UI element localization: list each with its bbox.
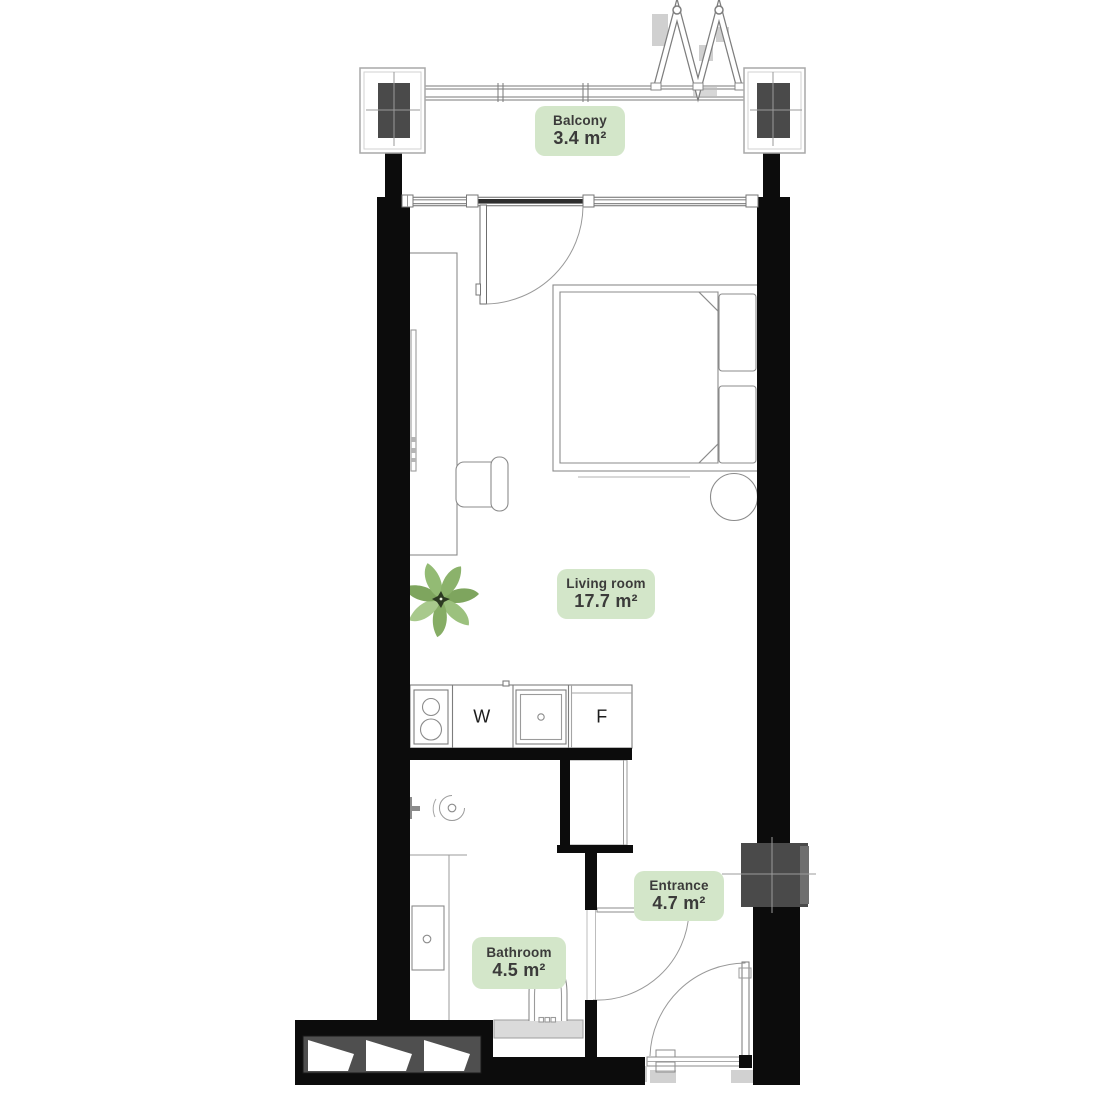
washer-label: W bbox=[473, 707, 491, 728]
room-area: 4.5 m² bbox=[492, 960, 545, 981]
sink bbox=[516, 690, 566, 744]
desk bbox=[409, 253, 457, 555]
bathroom-fixtures bbox=[408, 796, 583, 1039]
balcony-door-panel bbox=[478, 199, 583, 204]
ventilation-shaft bbox=[303, 1036, 481, 1073]
room-name: Balcony bbox=[553, 113, 607, 129]
room-badge-living-room: Living room 17.7 m² bbox=[557, 569, 655, 619]
cooktop bbox=[414, 690, 448, 744]
floor-plan-drawing bbox=[0, 0, 1100, 1100]
room-name: Living room bbox=[566, 576, 645, 592]
entrance-closet bbox=[567, 760, 627, 845]
bathroom-door bbox=[587, 908, 689, 1000]
plant bbox=[402, 561, 479, 638]
room-badge-entrance: Entrance 4.7 m² bbox=[634, 871, 724, 921]
awning-truss bbox=[651, 6, 745, 96]
room-area: 3.4 m² bbox=[553, 128, 606, 149]
chair bbox=[456, 457, 508, 511]
room-area: 4.7 m² bbox=[652, 893, 705, 914]
vanity-counter bbox=[494, 1020, 583, 1038]
washbasin bbox=[412, 906, 444, 970]
pillow bbox=[719, 294, 756, 371]
shower-drain-icon bbox=[433, 796, 464, 821]
room-badge-bathroom: Bathroom 4.5 m² bbox=[472, 937, 566, 989]
room-badge-balcony: Balcony 3.4 m² bbox=[535, 106, 625, 156]
room-name: Bathroom bbox=[486, 945, 551, 961]
fridge-label: F bbox=[596, 707, 608, 728]
round-table bbox=[711, 474, 758, 521]
column-top-left bbox=[360, 68, 425, 153]
column-entrance bbox=[722, 837, 816, 913]
bed bbox=[553, 285, 759, 477]
pillow bbox=[719, 386, 756, 463]
floor-plan-canvas: Balcony 3.4 m² Living room 17.7 m² Entra… bbox=[0, 0, 1100, 1100]
room-area: 17.7 m² bbox=[574, 591, 637, 612]
room-name: Entrance bbox=[649, 878, 708, 894]
column-top-right bbox=[744, 68, 805, 153]
